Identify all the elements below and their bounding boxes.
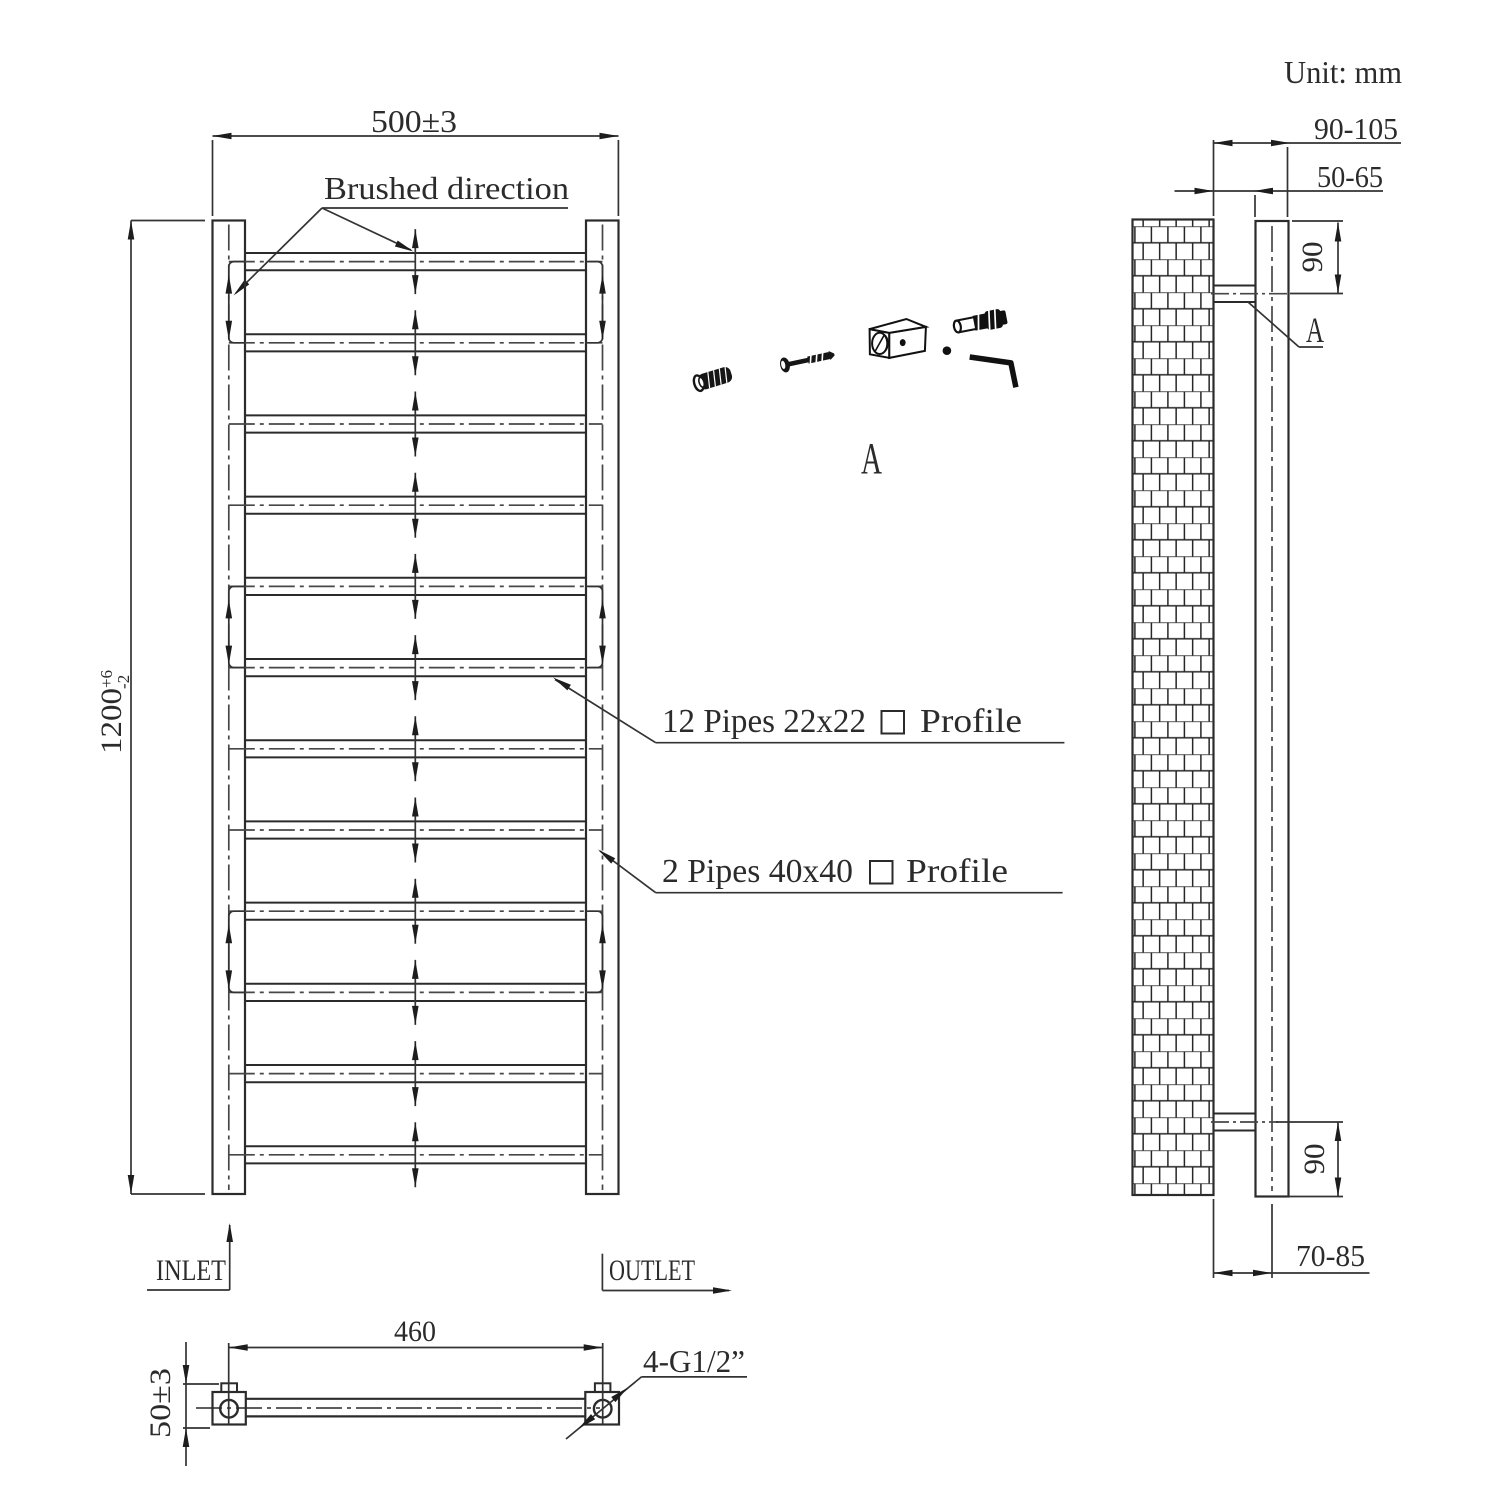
svg-text:50-65: 50-65: [1317, 159, 1383, 194]
svg-text:Profile: Profile: [920, 703, 1022, 740]
svg-text:70-85: 70-85: [1296, 1238, 1365, 1273]
svg-text:90: 90: [1296, 242, 1329, 273]
svg-text:Brushed direction: Brushed direction: [324, 170, 569, 206]
svg-text:A: A: [1306, 310, 1324, 350]
svg-text:INLET: INLET: [156, 1254, 226, 1287]
svg-text:12 Pipes 22x22: 12 Pipes 22x22: [662, 703, 866, 740]
svg-text:2 Pipes 40x40: 2 Pipes 40x40: [662, 853, 853, 890]
svg-text:A: A: [861, 434, 882, 483]
svg-text:90-105: 90-105: [1314, 111, 1398, 146]
svg-text:Unit: mm: Unit: mm: [1284, 54, 1402, 90]
svg-text:OUTLET: OUTLET: [609, 1254, 695, 1287]
svg-text:4-G1/2”: 4-G1/2”: [643, 1343, 745, 1379]
svg-text:90: 90: [1298, 1144, 1331, 1175]
svg-text:50±3: 50±3: [144, 1368, 177, 1438]
svg-text:500±3: 500±3: [371, 103, 457, 139]
svg-text:1200+6-2: 1200+6-2: [95, 670, 133, 754]
svg-text:460: 460: [394, 1315, 436, 1348]
svg-text:Profile: Profile: [906, 853, 1008, 890]
